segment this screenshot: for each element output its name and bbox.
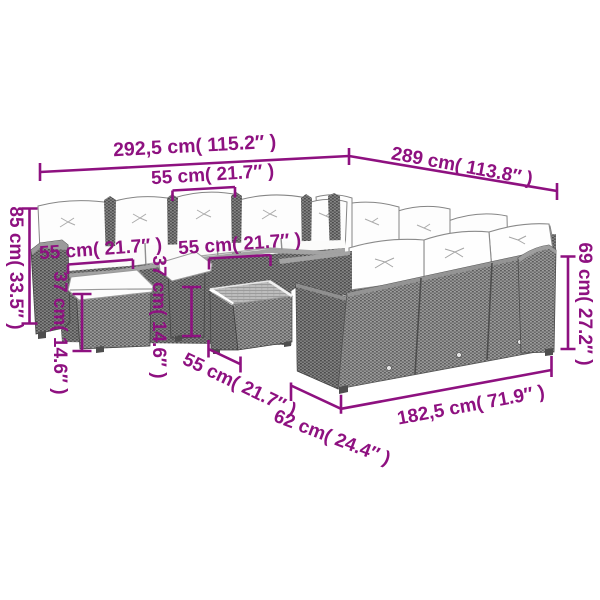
svg-text:37 cm( 14.6″ ): 37 cm( 14.6″ ) (148, 255, 169, 378)
svg-text:37 cm( 14.6″ ): 37 cm( 14.6″ ) (49, 271, 70, 394)
svg-text:69 cm( 27.2″ ): 69 cm( 27.2″ ) (574, 242, 595, 365)
svg-text:85 cm( 33.5″ ): 85 cm( 33.5″ ) (5, 206, 26, 329)
